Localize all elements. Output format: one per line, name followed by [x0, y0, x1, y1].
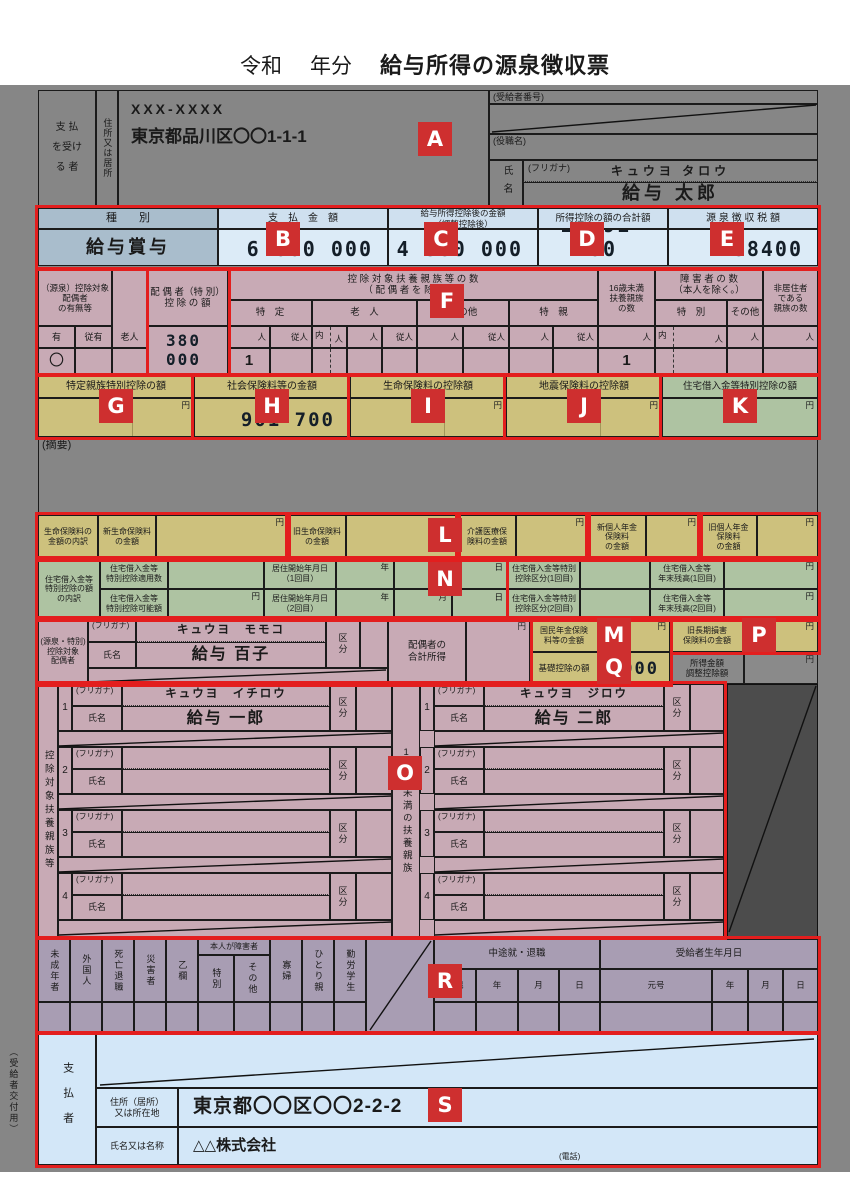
dep-furigana-value[interactable]: [484, 873, 664, 895]
unit-nin: 人: [763, 326, 818, 348]
yen-glyph: 円: [805, 562, 814, 571]
flag-cell[interactable]: [302, 1002, 334, 1032]
dep-furigana-label: (フリガナ): [434, 873, 484, 895]
recipient-number-field[interactable]: [489, 104, 818, 134]
yen-glyph: 円: [805, 401, 814, 410]
spouse-presence-value[interactable]: 〇: [38, 348, 75, 374]
flag-minor: 未成年者: [38, 939, 70, 1002]
flags-diagonal-cell: [366, 939, 434, 1032]
payer-name-label: 氏名又は名称: [96, 1127, 178, 1165]
dep-furigana-value[interactable]: キュウヨ ジロウ: [484, 684, 664, 706]
region-marker-e: E: [710, 222, 744, 256]
dep-row-no: 3: [420, 810, 434, 857]
nin-glyph: 人: [334, 334, 343, 344]
unit-nin: 人: [417, 326, 463, 348]
dep-cell[interactable]: [382, 348, 417, 374]
copy-for-recipient-label: （受給者交付用）: [4, 1036, 22, 1146]
dep-name-label: 氏名: [72, 769, 122, 794]
disabled-cell[interactable]: [727, 348, 763, 374]
dep-name-value[interactable]: [122, 895, 330, 920]
birthdate-day-label: 日: [783, 969, 818, 1002]
dep-furigana-value[interactable]: [484, 810, 664, 832]
dep-name-value[interactable]: 給与 二郎: [484, 706, 664, 731]
recipient-name-value[interactable]: 給与 太郎: [523, 182, 818, 206]
unit-junin: 従人: [463, 326, 509, 348]
nin-glyph: 人: [714, 334, 723, 344]
life-value-4[interactable]: 円: [757, 515, 818, 559]
payment-amount-value[interactable]: 6 000 000: [218, 229, 388, 266]
disabled-col-tokubetsu: 特 別: [655, 300, 727, 326]
recipient-address-value: 東京都品川区〇〇1-1-1: [131, 127, 307, 147]
birthdate-cell[interactable]: [600, 1002, 712, 1032]
flag-cell[interactable]: [334, 1002, 366, 1032]
recipient-block-label: 支 払 を受け る 者: [38, 90, 96, 206]
spouse-furigana-value[interactable]: キュウヨ モモコ: [136, 619, 326, 642]
dep-name-label: 氏名: [434, 832, 484, 857]
flag-self-disabled-special: 特別: [198, 955, 234, 1002]
dep-name-label: 氏名: [434, 769, 484, 794]
recipient-number-label: (受給者番号): [489, 90, 818, 104]
spouse-presence-yes-header: 有: [38, 326, 75, 348]
dep-tokutei-count[interactable]: 1: [228, 348, 270, 374]
kokumin-pension-label: 国民年金保険 料等の金額: [530, 619, 598, 652]
spouse-furigana-label: (フリガナ): [88, 619, 136, 642]
housing-r2-label-2: 住宅借入金等特別 控除区分(2回目): [508, 589, 580, 619]
unit-nin: 人: [509, 326, 553, 348]
dep-furigana-value[interactable]: [122, 810, 330, 832]
spouse-special-deduction-header: 配 偶 者（特 別） 控 除 の 額: [147, 270, 228, 326]
dep-furigana-value[interactable]: キュウヨ イチロウ: [122, 684, 330, 706]
dep-furigana-label: (フリガナ): [72, 747, 122, 769]
flag-single-parent: ひとり親: [302, 939, 334, 1002]
birthdate-cell[interactable]: [783, 1002, 818, 1032]
housing-r2-label-1: 居住開始年月日 （2回目）: [264, 589, 336, 619]
spouse-name-label: 氏名: [88, 642, 136, 668]
dep-cell[interactable]: [509, 348, 553, 374]
housing-r1-value-2[interactable]: [580, 559, 650, 589]
region-marker-r: R: [428, 964, 462, 998]
spouse-kubun-value[interactable]: [360, 619, 388, 668]
dep-name-value[interactable]: [484, 832, 664, 857]
gensen-choshuhyo-form: 令和 年分 給与所得の源泉徴収票 支 払 を受け る 者 住所又は居所 XXX-…: [0, 0, 850, 1200]
life-label-4: 旧個人年金 保険料 の金額: [700, 515, 757, 559]
spouse-elderly-header: 老人: [112, 270, 147, 348]
dep-col-tokushin: 特 親: [509, 300, 598, 326]
region-marker-n: N: [428, 562, 462, 596]
flag-cell[interactable]: [134, 1002, 166, 1032]
uchi-glyph: 内: [658, 330, 667, 340]
spouse-number-band: [88, 668, 388, 684]
unit-nin: 人: [598, 326, 655, 348]
dep-kubun-value[interactable]: [356, 810, 392, 857]
birthdate-month-label: 月: [748, 969, 783, 1002]
dep-kubun-value[interactable]: [356, 873, 392, 920]
region-marker-i: I: [411, 389, 445, 423]
dep-number-band: [58, 731, 392, 747]
yen-glyph: 円: [805, 622, 814, 631]
dep-furigana-label: (フリガナ): [434, 747, 484, 769]
housing-r1-label-0: 住宅借入金等 特別控除適用数: [100, 559, 168, 589]
dep-number-band: [58, 920, 392, 937]
dep-col-rojin: 老 人: [312, 300, 417, 326]
after-deduction-value[interactable]: 4 380 000: [388, 229, 538, 266]
dep-row-no: 1: [420, 684, 434, 731]
chosei-deduction-label: 所得金額 調整控除額: [670, 652, 744, 684]
dashed-divider: [673, 327, 674, 347]
year-label: 年分: [310, 50, 352, 80]
dep-name-value[interactable]: [122, 832, 330, 857]
region-marker-l: L: [428, 518, 462, 552]
flag-cell[interactable]: [102, 1002, 134, 1032]
spouse-presence-header: （源泉）控除対象配偶者 の有無等: [38, 270, 112, 326]
dep-kubun-label: 区 分: [664, 810, 690, 857]
housing-r2-label-0: 住宅借入金等 特別控除可能額: [100, 589, 168, 619]
unit-junin: 従人: [270, 326, 312, 348]
dep-kubun-value[interactable]: [690, 873, 724, 920]
region-marker-a: A: [418, 122, 452, 156]
dep-kubun-value[interactable]: [690, 684, 724, 731]
spouse-presence-subyes-header: 従有: [75, 326, 112, 348]
dep-name-value[interactable]: 給与 一郎: [122, 706, 330, 731]
region-marker-g: G: [99, 389, 133, 423]
birthdate-header: 受給者生年月日: [600, 939, 818, 969]
dep-number-band: [58, 794, 392, 810]
region-marker-k: K: [723, 389, 757, 423]
dep-cell[interactable]: [553, 348, 598, 374]
yen-glyph: 円: [493, 401, 502, 410]
life-intro-label: 生命保険料の 金額の内訳: [38, 515, 98, 559]
yen-glyph: 円: [517, 622, 526, 631]
unit-junin: 従人: [553, 326, 598, 348]
dep-furigana-value[interactable]: [122, 873, 330, 895]
form-title: 令和 年分 給与所得の源泉徴収票: [0, 48, 850, 80]
dep-row-no: 2: [58, 747, 72, 794]
housing-r1-label-3: 住宅借入金等 年末残高(1回目): [650, 559, 724, 589]
unit-nin: 人: [727, 326, 763, 348]
flag-cell[interactable]: [270, 1002, 302, 1032]
dep-number-band: [434, 794, 724, 810]
dep-cell[interactable]: [270, 348, 312, 374]
spouse-presence-subyes-value[interactable]: [75, 348, 112, 374]
flag-self-disabled-other: その他: [234, 955, 270, 1002]
page-title: 給与所得の源泉徴収票: [380, 48, 610, 80]
payer-number-band: [96, 1034, 818, 1088]
unit-nin: 人: [347, 326, 382, 348]
recipient-furigana-value: キュウヨ タロウ: [611, 164, 730, 178]
flag-death-retirement: 死亡退職: [102, 939, 134, 1002]
dep-kubun-label: 区 分: [330, 747, 356, 794]
life-label-0: 新生命保険料 の金額: [98, 515, 156, 559]
dep-name-value[interactable]: [484, 769, 664, 794]
region-marker-m: M: [597, 618, 631, 652]
spouse-left-label: (源泉・特別) 控除対象 配偶者: [38, 619, 88, 684]
dep-name-value[interactable]: [484, 895, 664, 920]
dep-kubun-label: 区 分: [330, 873, 356, 920]
yen-glyph: 円: [649, 401, 658, 410]
life-label-3: 新個人年金 保険料 の金額: [588, 515, 646, 559]
payer-address-value: 東京都〇〇区〇〇2-2-2: [193, 1096, 402, 1119]
midyear-cell[interactable]: [518, 1002, 559, 1032]
spouse-name-value[interactable]: 給与 百子: [136, 642, 326, 668]
choki-insurance-label: 旧長期損害 保険料の金額: [670, 619, 744, 652]
dependents-left-label: 控除対象扶養親族等: [38, 684, 58, 937]
housing-r1-year[interactable]: 年: [336, 559, 394, 589]
recipient-postal-code: XXX-XXXX: [131, 101, 225, 118]
region-marker-q: Q: [597, 650, 631, 684]
dep-name-label: 氏名: [434, 895, 484, 920]
dep-cell[interactable]: [312, 348, 347, 374]
flag-foreigner: 外国人: [70, 939, 102, 1002]
yen-glyph: 円: [687, 518, 696, 527]
housing-r2-value-3[interactable]: 円: [724, 589, 818, 619]
dep-row-no: 2: [420, 747, 434, 794]
chosei-deduction-value[interactable]: 円: [744, 652, 818, 684]
flag-self-disabled-header: 本人が障害者: [198, 939, 270, 955]
flag-widow: 寡婦: [270, 939, 302, 1002]
dep-name-label: 氏名: [72, 706, 122, 731]
under16-header: 16歳未満 扶養親族 の数: [598, 270, 655, 326]
unit-uchi-nin: 内 人: [655, 326, 727, 348]
recipient-name-label: 氏名: [489, 160, 523, 206]
housing-r2-value-0[interactable]: 円: [168, 589, 264, 619]
flag-cell[interactable]: [166, 1002, 198, 1032]
life-label-1: 旧生命保険料 の金額: [288, 515, 346, 559]
dep-kubun-value[interactable]: [356, 747, 392, 794]
flag-cell[interactable]: [234, 1002, 270, 1032]
dep-kubun-label: 区 分: [330, 810, 356, 857]
yen-glyph: 円: [251, 592, 260, 601]
unused-dark-area: [727, 684, 818, 937]
payer-name-value: △△株式会社: [193, 1137, 276, 1155]
housing-r1-label-2: 住宅借入金等特別 控除区分(1回目): [508, 559, 580, 589]
dep-furigana-label: (フリガナ): [72, 684, 122, 706]
birthdate-era-label: 元号: [600, 969, 712, 1002]
birthdate-year-label: 年: [712, 969, 748, 1002]
dep-furigana-value[interactable]: [122, 747, 330, 769]
flag-working-student: 勤労学生: [334, 939, 366, 1002]
yen-glyph: 円: [575, 518, 584, 527]
yen-glyph: 円: [657, 622, 666, 631]
dep-kubun-label: 区 分: [664, 747, 690, 794]
dep-kubun-label: 区 分: [330, 684, 356, 731]
payer-name-cell[interactable]: △△株式会社 (電話): [178, 1127, 818, 1165]
midyear-day-label: 日: [559, 969, 600, 1002]
dep-name-label: 氏名: [434, 706, 484, 731]
dep-name-label: 氏名: [72, 832, 122, 857]
kiso-deduction-label: 基礎控除の額: [530, 652, 598, 684]
midyear-cell[interactable]: [434, 1002, 476, 1032]
recipient-address-label: 住所又は居所: [96, 90, 118, 206]
dep-cell[interactable]: [347, 348, 382, 374]
flag-disaster: 災害者: [134, 939, 166, 1002]
region-marker-j: J: [567, 389, 601, 423]
region-marker-s: S: [428, 1088, 462, 1122]
life-value-0[interactable]: 円: [156, 515, 288, 559]
spouse-special-deduction-value[interactable]: 380 000: [147, 326, 228, 374]
region-marker-c: C: [424, 222, 458, 256]
dep-furigana-label: (フリガナ): [434, 684, 484, 706]
disabled-count-header: 障 害 者 の 数 （本人を除く。）: [655, 270, 763, 300]
spouse-kubun-label: 区 分: [326, 619, 360, 668]
flag-cell[interactable]: [70, 1002, 102, 1032]
nonresident-header: 非居住者 である 親族の数: [763, 270, 818, 326]
dep-col-tokutei: 特 定: [228, 300, 312, 326]
summary-field[interactable]: (摘要): [38, 437, 818, 515]
payment-header: 支 払 金 額: [218, 208, 388, 229]
yen-glyph: 円: [181, 401, 190, 410]
dep-kubun-label: 区 分: [664, 873, 690, 920]
yen-glyph: 円: [275, 518, 284, 527]
unit-junin: 従人: [382, 326, 417, 348]
midyear-year-label: 年: [476, 969, 518, 1002]
payer-label: 支払者: [38, 1034, 96, 1165]
spouse-total-income-value[interactable]: 円: [466, 619, 530, 684]
region-marker-p: P: [742, 618, 776, 652]
birthdate-cell[interactable]: [748, 1002, 783, 1032]
region-marker-b: B: [266, 222, 300, 256]
dep-number-band: [434, 731, 724, 747]
under16-count[interactable]: 1: [598, 348, 655, 374]
midyear-month-label: 月: [518, 969, 559, 1002]
region-marker-f: F: [430, 284, 464, 318]
under16-middle-label: 16歳未満の扶養親族: [392, 684, 420, 937]
dep-row-no: 4: [420, 873, 434, 920]
spouse-total-income-label: 配偶者の 合計所得: [388, 619, 466, 684]
dep-cell[interactable]: [417, 348, 463, 374]
region-marker-o: O: [388, 756, 422, 790]
dep-furigana-value[interactable]: [484, 747, 664, 769]
dep-cell[interactable]: [463, 348, 509, 374]
dep-kubun-label: 区 分: [664, 684, 690, 731]
flag-cell[interactable]: [198, 1002, 234, 1032]
region-marker-h: H: [255, 389, 289, 423]
yen-glyph: 円: [805, 592, 814, 601]
flag-cell[interactable]: [38, 1002, 70, 1032]
housing-r2-label-3: 住宅借入金等 年末残高(2回目): [650, 589, 724, 619]
housing-r1-value-3[interactable]: 円: [724, 559, 818, 589]
life-value-2[interactable]: 円: [516, 515, 588, 559]
dep-furigana-label: (フリガナ): [72, 810, 122, 832]
after-deduction-header: 給与所得控除後の金額 （調整控除後）: [388, 208, 538, 229]
life-label-2: 介護医療保 険料の金額: [458, 515, 516, 559]
dep-furigana-label: (フリガナ): [434, 810, 484, 832]
disabled-col-sonota: その他: [727, 300, 763, 326]
dependents-count-header: 控 除 対 象 扶 養 親 族 等 の 数 （ 配 偶 者 を 除 く 。）: [228, 270, 598, 300]
dep-number-band: [434, 920, 724, 937]
spouse-elderly-value[interactable]: [112, 348, 147, 374]
dep-number-band: [58, 857, 392, 873]
flag-otsuran: 乙欄: [166, 939, 198, 1002]
unit-uchi-nin: 内 人: [312, 326, 347, 348]
unit-nin: 人: [228, 326, 270, 348]
dep-name-label: 氏名: [72, 895, 122, 920]
dashed-divider: [330, 349, 331, 373]
dashed-divider: [673, 349, 674, 373]
housing-r1-label-1: 居住開始年月日 （1回目）: [264, 559, 336, 589]
dep-row-no: 3: [58, 810, 72, 857]
dep-kubun-value[interactable]: [690, 747, 724, 794]
dep-name-value[interactable]: [122, 769, 330, 794]
recipient-furigana-cell[interactable]: (フリガナ) キュウヨ タロウ: [523, 160, 818, 182]
housing-intro-label: 住宅借入金等 特別控除の額 の内訳: [38, 559, 100, 619]
housing-r1-value-0[interactable]: [168, 559, 264, 589]
type-header: 種 別: [38, 208, 218, 229]
housing-r2-year[interactable]: 年: [336, 589, 394, 619]
birthdate-cell[interactable]: [712, 1002, 748, 1032]
recipient-role-field[interactable]: (役職名): [489, 134, 818, 160]
yen-glyph: 円: [805, 655, 814, 664]
dep-kubun-value[interactable]: [356, 684, 392, 731]
housing-r2-value-2[interactable]: [580, 589, 650, 619]
furigana-label: (フリガナ): [528, 163, 570, 174]
uchi-glyph: 内: [315, 330, 324, 340]
region-marker-d: D: [570, 222, 604, 256]
midyear-cell[interactable]: [559, 1002, 600, 1032]
dep-row-no: 1: [58, 684, 72, 731]
dep-number-band: [434, 857, 724, 873]
payer-address-label: 住所（居所） 又は所在地: [96, 1088, 178, 1127]
life-value-3[interactable]: 円: [646, 515, 700, 559]
type-value[interactable]: 給与賞与: [38, 229, 218, 266]
era-label: 令和: [240, 50, 282, 80]
payer-tel-label: (電話): [559, 1152, 580, 1162]
nonresident-cell[interactable]: [763, 348, 818, 374]
disabled-cell[interactable]: [655, 348, 727, 374]
midyear-cell[interactable]: [476, 1002, 518, 1032]
dep-kubun-value[interactable]: [690, 810, 724, 857]
dep-furigana-label: (フリガナ): [72, 873, 122, 895]
dep-row-no: 4: [58, 873, 72, 920]
yen-glyph: 円: [805, 518, 814, 527]
payer-address-cell[interactable]: 東京都〇〇区〇〇2-2-2: [178, 1088, 818, 1127]
dashed-divider: [330, 327, 331, 347]
